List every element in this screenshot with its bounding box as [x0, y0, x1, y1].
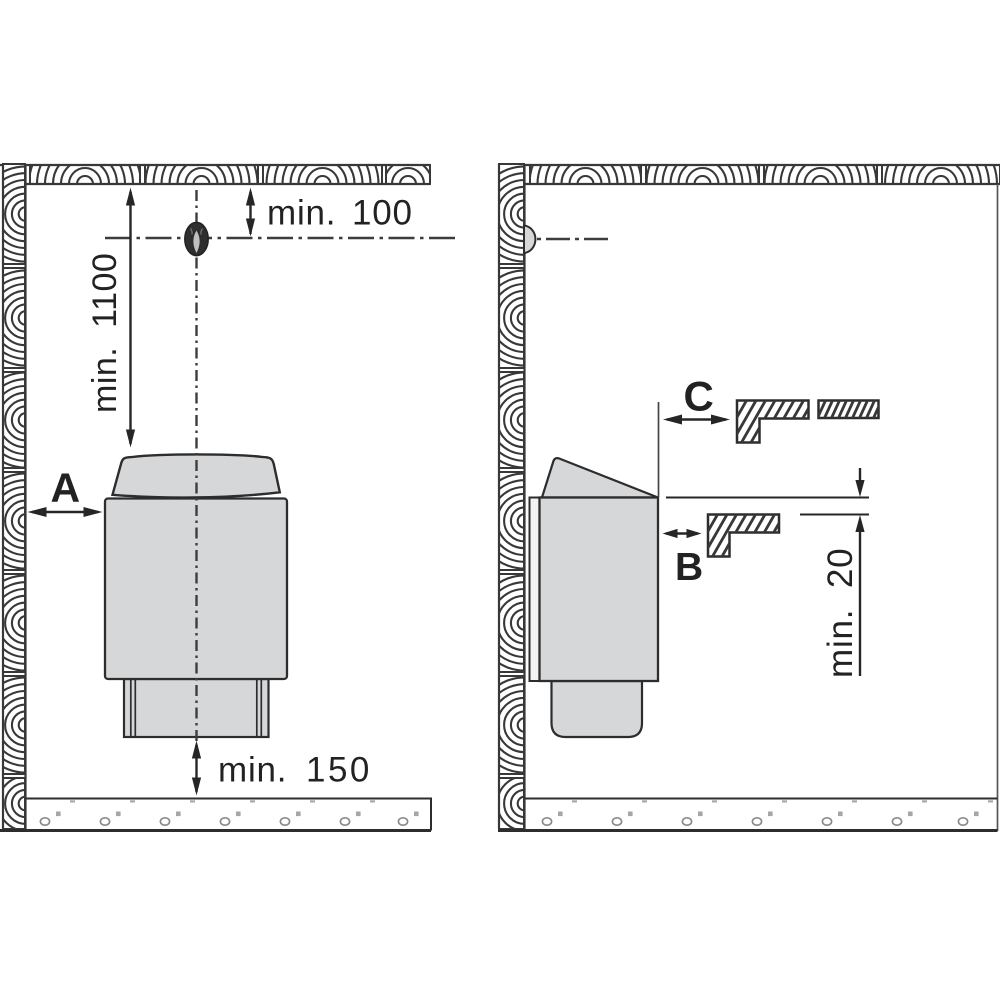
svg-text:B: B [675, 546, 703, 589]
svg-text:150: 150 [306, 751, 372, 790]
svg-text:min.: min. [218, 751, 287, 790]
svg-text:A: A [51, 465, 81, 511]
svg-text:C: C [684, 373, 714, 420]
svg-text:min. 1100: min. 1100 [86, 253, 124, 413]
svg-text:min.: min. [267, 194, 336, 233]
svg-text:100: 100 [352, 194, 413, 233]
svg-text:min. 20: min. 20 [821, 548, 860, 678]
